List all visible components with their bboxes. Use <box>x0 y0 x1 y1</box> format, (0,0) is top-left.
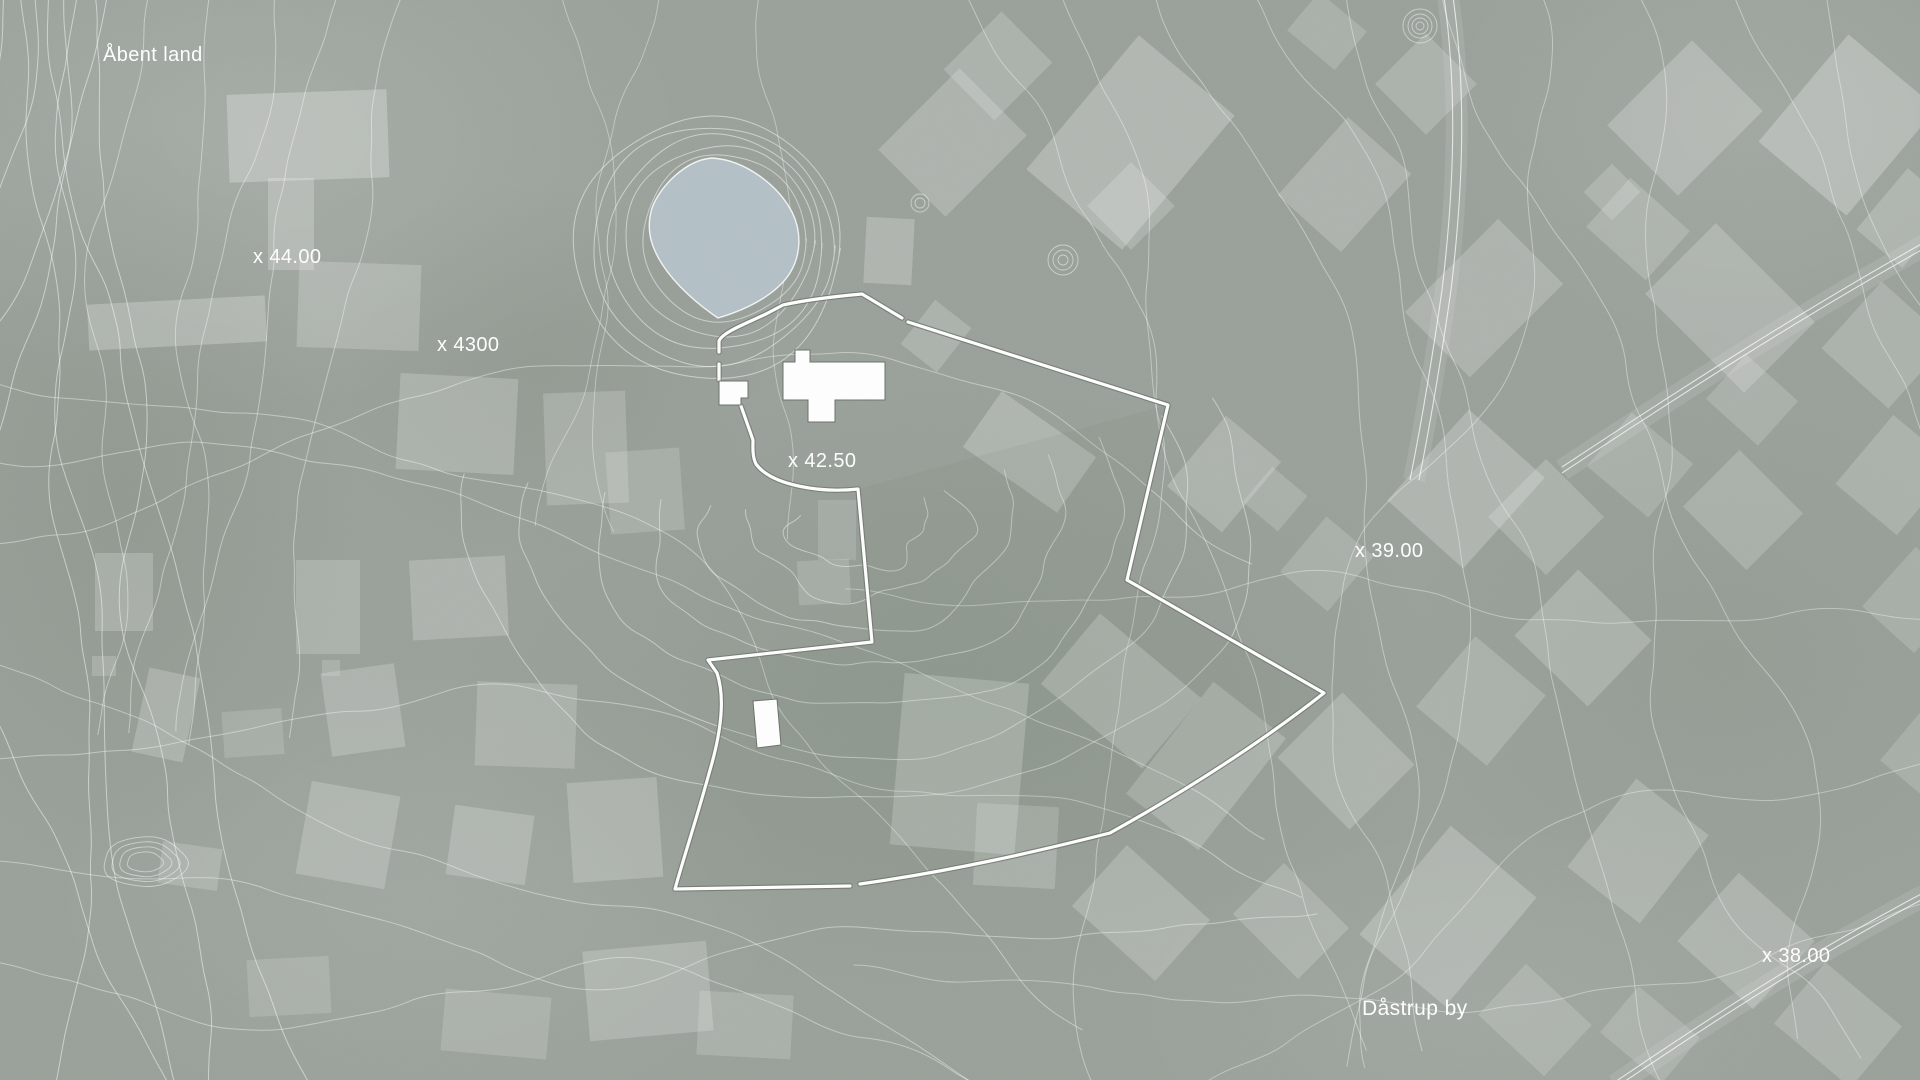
topographic-map[interactable]: Åbent land x 44.00 x 4300 x 42.50 x 39.0… <box>0 0 1920 1080</box>
map-canvas[interactable]: Åbent land x 44.00 x 4300 x 42.50 x 39.0… <box>0 0 1920 1080</box>
grain-texture <box>0 0 1920 1080</box>
